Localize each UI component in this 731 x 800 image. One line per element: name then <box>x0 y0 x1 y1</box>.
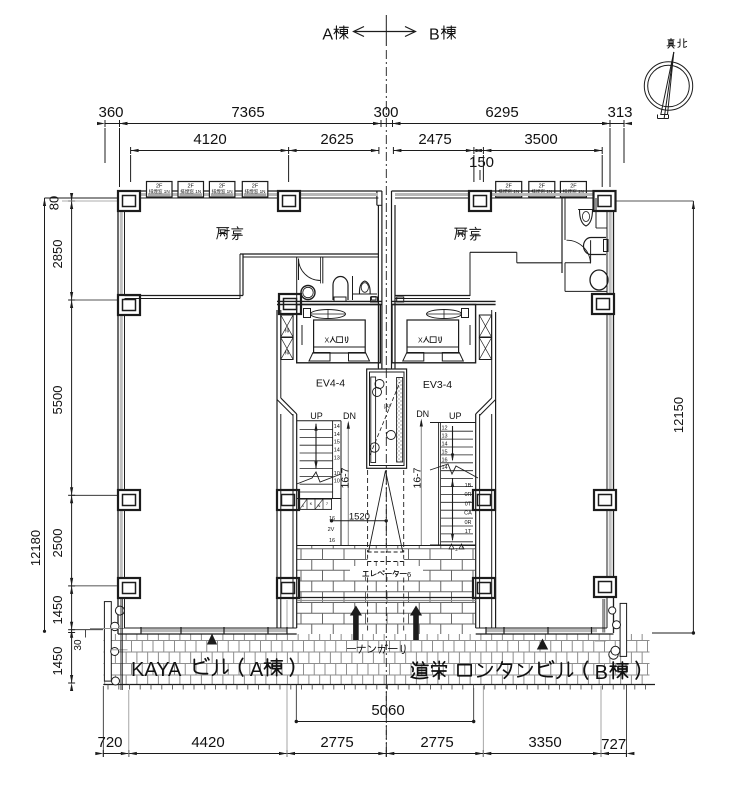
svg-text:0R: 0R <box>464 520 471 526</box>
svg-text:7365: 7365 <box>231 104 264 121</box>
svg-text:3350: 3350 <box>528 734 561 751</box>
svg-text:KAYA: KAYA <box>131 659 182 681</box>
svg-text:5060: 5060 <box>371 702 404 719</box>
svg-text:1450: 1450 <box>50 647 65 676</box>
svg-text:300: 300 <box>373 104 398 121</box>
svg-text:14: 14 <box>334 448 340 454</box>
svg-text:UP: UP <box>449 411 462 421</box>
svg-text:2500: 2500 <box>50 529 65 558</box>
svg-text:2775: 2775 <box>420 734 453 751</box>
svg-text:2775: 2775 <box>320 734 353 751</box>
svg-text:16-7: 16-7 <box>340 467 352 488</box>
svg-text:排煙窓 1N: 排煙窓 1N <box>180 188 201 195</box>
svg-text:5500: 5500 <box>50 386 65 415</box>
svg-text:12: 12 <box>441 426 447 432</box>
svg-text:2475: 2475 <box>418 131 451 148</box>
svg-text:(A): (A) <box>384 404 391 410</box>
svg-text:DN: DN <box>416 409 429 419</box>
svg-text:2625: 2625 <box>320 131 353 148</box>
svg-text:3500: 3500 <box>524 131 557 148</box>
svg-text:16-7: 16-7 <box>412 467 424 488</box>
svg-text:0T: 0T <box>465 501 472 507</box>
svg-text:A: A <box>322 27 333 44</box>
svg-text:1520: 1520 <box>349 512 370 523</box>
svg-text:727: 727 <box>601 736 626 753</box>
svg-text:4120: 4120 <box>193 131 226 148</box>
svg-text:排煙窓 1N: 排煙窓 1N <box>149 188 170 195</box>
svg-text:K: K <box>310 501 313 506</box>
svg-text:B: B <box>595 662 608 684</box>
svg-text:排: 排 <box>285 327 290 334</box>
svg-text:13: 13 <box>441 434 447 440</box>
svg-text:排煙窓 1N: 排煙窓 1N <box>212 188 233 195</box>
svg-text:2V: 2V <box>328 527 335 533</box>
svg-text:1B: 1B <box>465 483 472 489</box>
svg-text:EV4-4: EV4-4 <box>316 378 345 390</box>
svg-text:0R: 0R <box>464 492 471 498</box>
svg-text:1T: 1T <box>465 529 472 535</box>
svg-text:排: 排 <box>285 349 290 356</box>
svg-text:EV3-4: EV3-4 <box>423 379 452 391</box>
svg-text:12180: 12180 <box>28 530 43 566</box>
svg-text:A: A <box>250 659 264 681</box>
svg-text:30: 30 <box>73 639 84 651</box>
svg-text:1450: 1450 <box>50 596 65 625</box>
svg-text:14: 14 <box>334 424 340 430</box>
svg-text:15: 15 <box>441 449 447 455</box>
svg-text:B: B <box>429 27 440 44</box>
svg-text:2850: 2850 <box>50 240 65 269</box>
svg-text:14: 14 <box>441 442 447 448</box>
svg-text:150: 150 <box>469 154 494 171</box>
svg-text:15: 15 <box>334 440 340 446</box>
svg-text:6: 6 <box>407 570 411 579</box>
svg-text:80: 80 <box>47 196 62 210</box>
svg-text:4420: 4420 <box>191 734 224 751</box>
svg-text:UP: UP <box>310 411 323 421</box>
svg-text:X: X <box>325 338 330 345</box>
svg-text:360: 360 <box>98 104 123 121</box>
svg-text:12150: 12150 <box>671 397 686 433</box>
svg-text:16: 16 <box>441 457 447 463</box>
svg-text:X: X <box>418 338 423 345</box>
svg-text:6295: 6295 <box>485 104 518 121</box>
svg-text:DN: DN <box>343 411 356 421</box>
svg-text:16: 16 <box>329 538 335 544</box>
svg-text:313: 313 <box>607 104 632 121</box>
svg-text:排煙窓 1N: 排煙窓 1N <box>245 188 266 195</box>
svg-text:CA: CA <box>464 511 472 517</box>
svg-text:14: 14 <box>334 432 340 438</box>
svg-text:720: 720 <box>97 734 122 751</box>
svg-text:N: N <box>318 503 321 508</box>
svg-text:13: 13 <box>334 455 340 461</box>
